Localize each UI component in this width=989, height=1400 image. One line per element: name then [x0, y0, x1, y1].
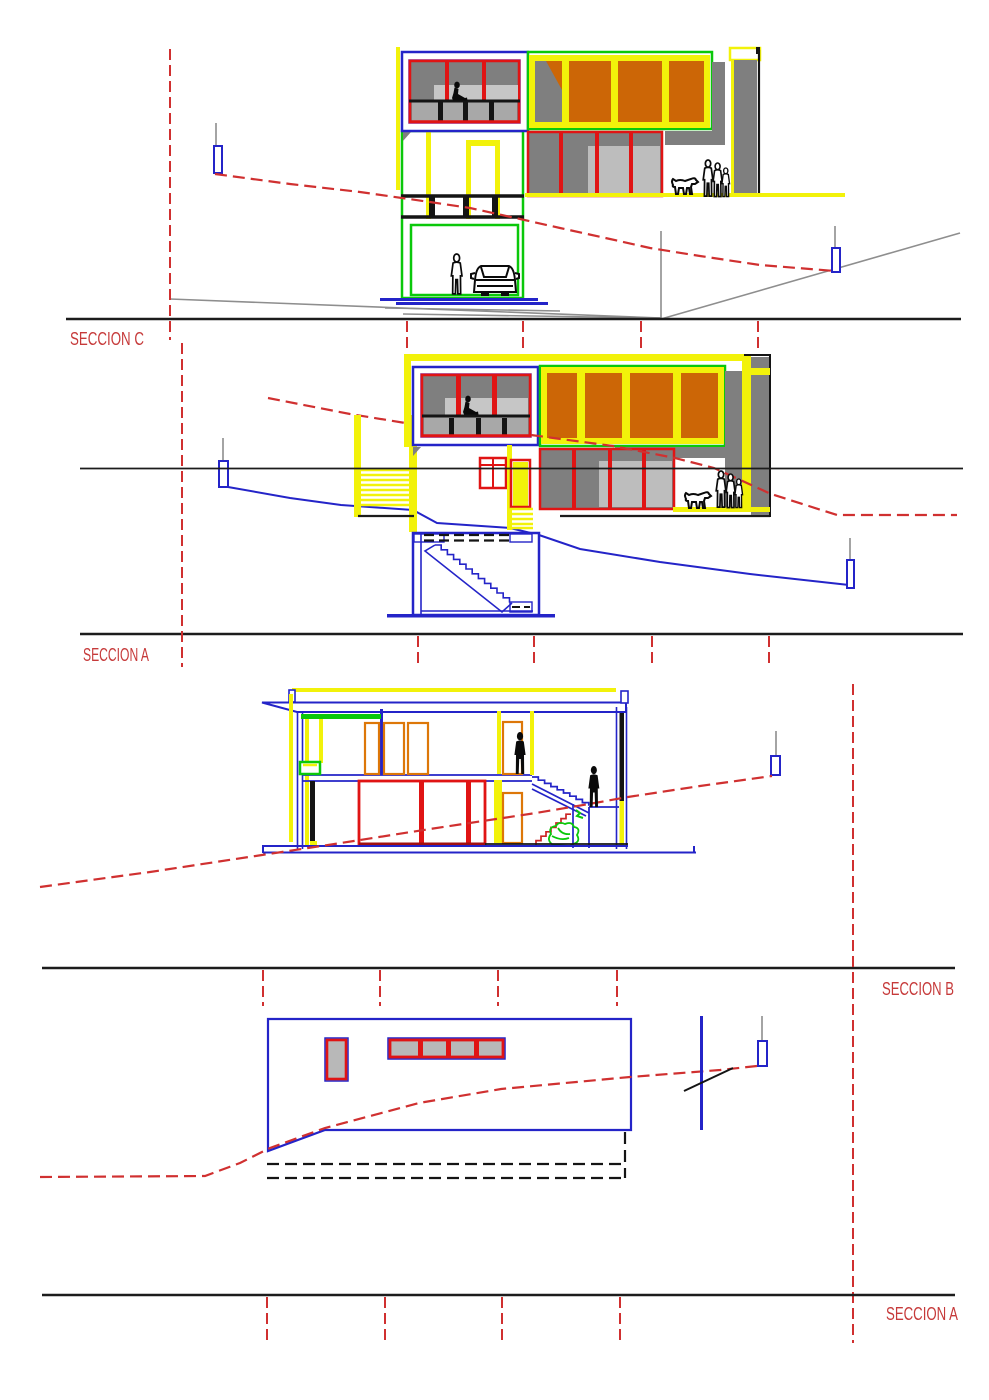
svg-text:SECCION C: SECCION C — [70, 329, 144, 349]
svg-text:SECCION A: SECCION A — [886, 1304, 958, 1324]
svg-text:SECCION B: SECCION B — [882, 979, 954, 999]
svg-text:SECCION A: SECCION A — [83, 645, 149, 665]
